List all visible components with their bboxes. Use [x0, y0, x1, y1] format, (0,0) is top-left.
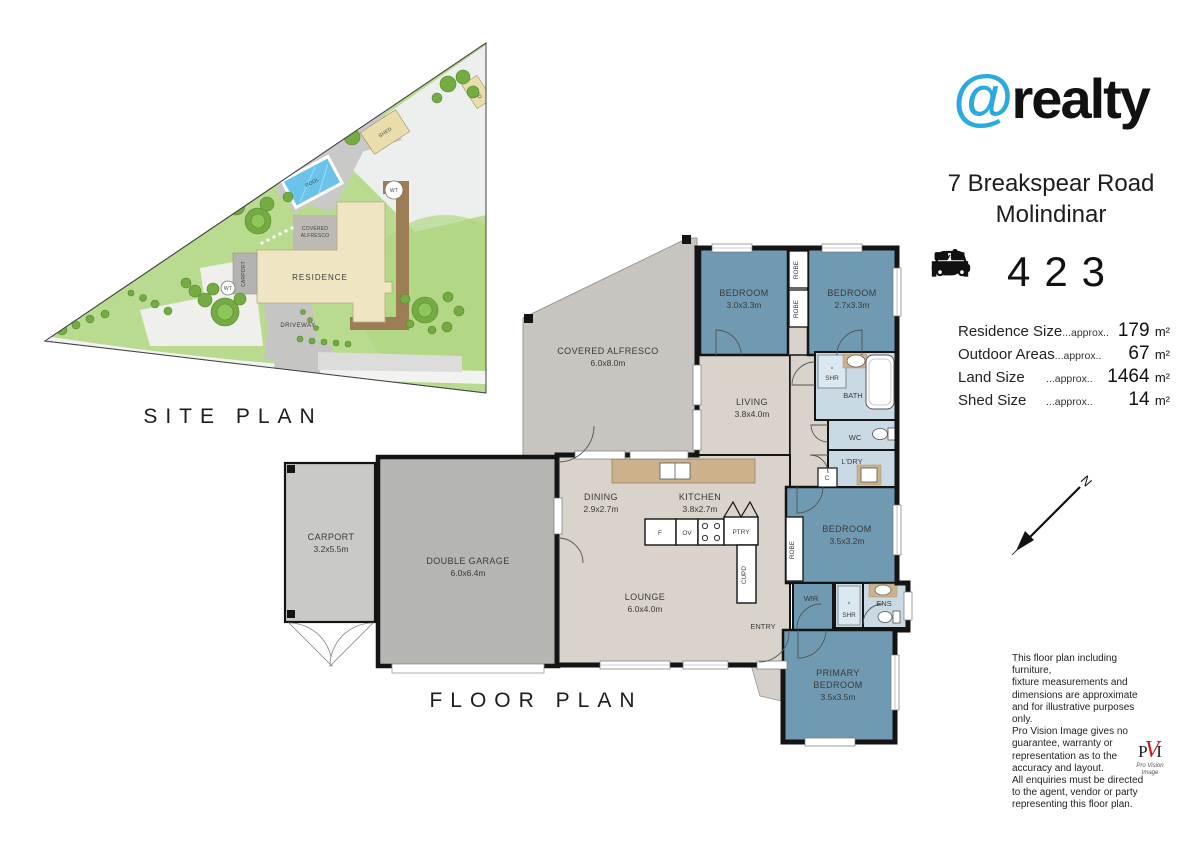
beds-feature: 4 [1007, 248, 1030, 296]
living-label: LIVING [736, 397, 768, 407]
ens-label: ENS [876, 599, 891, 608]
bedroom3-label: BEDROOM [822, 524, 871, 534]
shr-ens-label: SHR [842, 612, 856, 619]
shower-main [818, 355, 846, 388]
robe3-label: ROBE [789, 541, 796, 559]
cars-count: 3 [1082, 248, 1105, 296]
garage-label: DOUBLE GARAGE [426, 556, 509, 566]
size-value: 14 m² [1104, 389, 1170, 411]
approx-text: ...approx.. [1055, 350, 1109, 362]
disclaimer-line: to the agent, vendor or party [1012, 787, 1150, 799]
size-row-shed: Shed Size ...approx.. 14 m² [958, 389, 1170, 412]
wt2-label: WT [224, 286, 232, 292]
cupd-label: CUPD [741, 566, 748, 584]
primary-label-1: PRIMARY [816, 668, 860, 678]
carport-dims: 3.2x5.5m [314, 544, 349, 554]
site-carport-label: CARPORT [241, 261, 247, 287]
bedroom1-dims: 3.0x3.3m [727, 300, 762, 310]
kitchen-label: KITCHEN [679, 492, 721, 502]
agency-logo: @realty [920, 62, 1182, 133]
bedroom1-label: BEDROOM [719, 288, 768, 298]
bedroom2-label: BEDROOM [827, 288, 876, 298]
size-value: 179 m² [1113, 320, 1170, 342]
site-alfresco-label-2: ALFRESCO [301, 233, 330, 239]
oven-label: OV [682, 530, 692, 537]
size-table: Residence Size ...approx.. 179 m² Outdoo… [958, 320, 1170, 412]
alfresco-label: COVERED ALFRESCO [557, 346, 658, 356]
size-row-residence: Residence Size ...approx.. 179 m² [958, 320, 1170, 343]
site-plan: POOL SHED SHED [45, 43, 530, 428]
approx-text: ...approx.. [1046, 373, 1104, 385]
wt1-label: WT [390, 188, 398, 194]
pvi-letters: PVI [1125, 740, 1175, 763]
carport-gate-left [289, 623, 332, 666]
room-carport [285, 463, 375, 622]
size-label: Land Size [958, 369, 1046, 386]
primary-label-2: BEDROOM [813, 680, 862, 690]
beds-count: 4 [1007, 248, 1030, 296]
address-line-2: Molindinar [920, 199, 1182, 230]
wc-toilet [873, 429, 888, 440]
carport-label: CARPORT [308, 532, 355, 542]
robe2-label: ROBE [793, 300, 800, 318]
site-driveway-label: DRIVEWAY [280, 323, 315, 329]
baths-count: 2 [1044, 248, 1067, 296]
disclaimer-line: All enquiries must be directed [1012, 775, 1150, 787]
ptry-label: PTRY [733, 529, 751, 536]
logo-at-symbol: @ [953, 63, 1011, 132]
floor-plan-title: FLOOR PLAN [429, 689, 642, 712]
size-label: Shed Size [958, 392, 1046, 409]
address-line-1: 7 Breakspear Road [920, 168, 1182, 199]
cars-feature: 3 [1082, 248, 1105, 296]
flyer-page: POOL SHED SHED [0, 0, 1200, 848]
ens-sink [875, 585, 891, 595]
primary-dims: 3.5x3.5m [821, 692, 856, 702]
site-residence-label: RESIDENCE [292, 273, 348, 282]
size-value: 1464 m² [1104, 366, 1170, 388]
kitchen-dims: 3.8x2.7m [683, 504, 718, 514]
disclaimer-line: Pro Vision Image gives no [1012, 726, 1150, 738]
disclaimer-line: dimensions are approximate [1012, 690, 1150, 702]
logo-name: realty [1012, 67, 1149, 130]
feature-icons-row: 4 2 3 [930, 248, 1182, 296]
approx-text: ...approx.. [1062, 327, 1112, 339]
carport-gate-right [330, 623, 373, 666]
bedroom2-dims: 2.7x3.3m [835, 300, 870, 310]
dining-label: DINING [584, 492, 618, 502]
disclaimer: This floor plan including furniture, fix… [1012, 653, 1150, 812]
alfresco-dims: 6.0x8.0m [591, 358, 626, 368]
lounge-label: LOUNGE [625, 592, 665, 602]
wir-label: WIR [804, 594, 819, 603]
info-panel: @realty 7 Breakspear Road Molindinar 4 2 [920, 0, 1200, 848]
room-wir [793, 583, 833, 630]
laundry-sink [861, 468, 877, 482]
pvi-subtext-2: Image [1125, 770, 1175, 777]
bathtub [866, 355, 894, 409]
cooktop [698, 519, 724, 545]
site-plan-title: SITE PLAN [143, 405, 322, 428]
size-label: Outdoor Areas [958, 346, 1055, 363]
dining-dims: 2.9x2.7m [584, 504, 619, 514]
approx-text: ...approx.. [1046, 396, 1104, 408]
disclaimer-line: and for illustrative purposes only. [1012, 702, 1150, 726]
hall-top [786, 327, 808, 355]
size-row-land: Land Size ...approx.. 1464 m² [958, 366, 1170, 389]
property-address: 7 Breakspear Road Molindinar [920, 168, 1182, 230]
wc-label: WC [849, 433, 862, 442]
robe1-label: ROBE [793, 261, 800, 279]
size-label: Residence Size [958, 323, 1062, 340]
entry-label: ENTRY [750, 622, 775, 631]
baths-feature: 2 [1044, 248, 1067, 296]
car-icon [930, 248, 972, 278]
size-value: 67 m² [1109, 343, 1170, 365]
ldry-label: L'DRY [841, 457, 862, 466]
garage-dims: 6.0x6.4m [451, 568, 486, 578]
site-alfresco-label-1: COVERED [302, 226, 328, 232]
ens-toilet [878, 612, 892, 623]
bedroom3-dims: 3.5x3.2m [830, 536, 865, 546]
bath-sink [847, 355, 865, 367]
pro-vision-image-logo: PVI Pro Vision Image [1125, 740, 1175, 776]
cupboard-c-label: C [825, 475, 830, 482]
fridge-label: F [658, 530, 662, 537]
living-dims: 3.8x4.0m [735, 409, 770, 419]
size-row-outdoor: Outdoor Areas ...approx.. 67 m² [958, 343, 1170, 366]
shr-main-label: SHR [825, 375, 839, 382]
disclaimer-line: This floor plan including furniture, [1012, 653, 1150, 677]
lounge-dims: 6.0x4.0m [628, 604, 663, 614]
garage-door [392, 664, 544, 673]
disclaimer-line: fixture measurements and [1012, 677, 1150, 689]
disclaimer-line: representing this floor plan. [1012, 799, 1150, 811]
bath-label: BATH [843, 391, 862, 400]
